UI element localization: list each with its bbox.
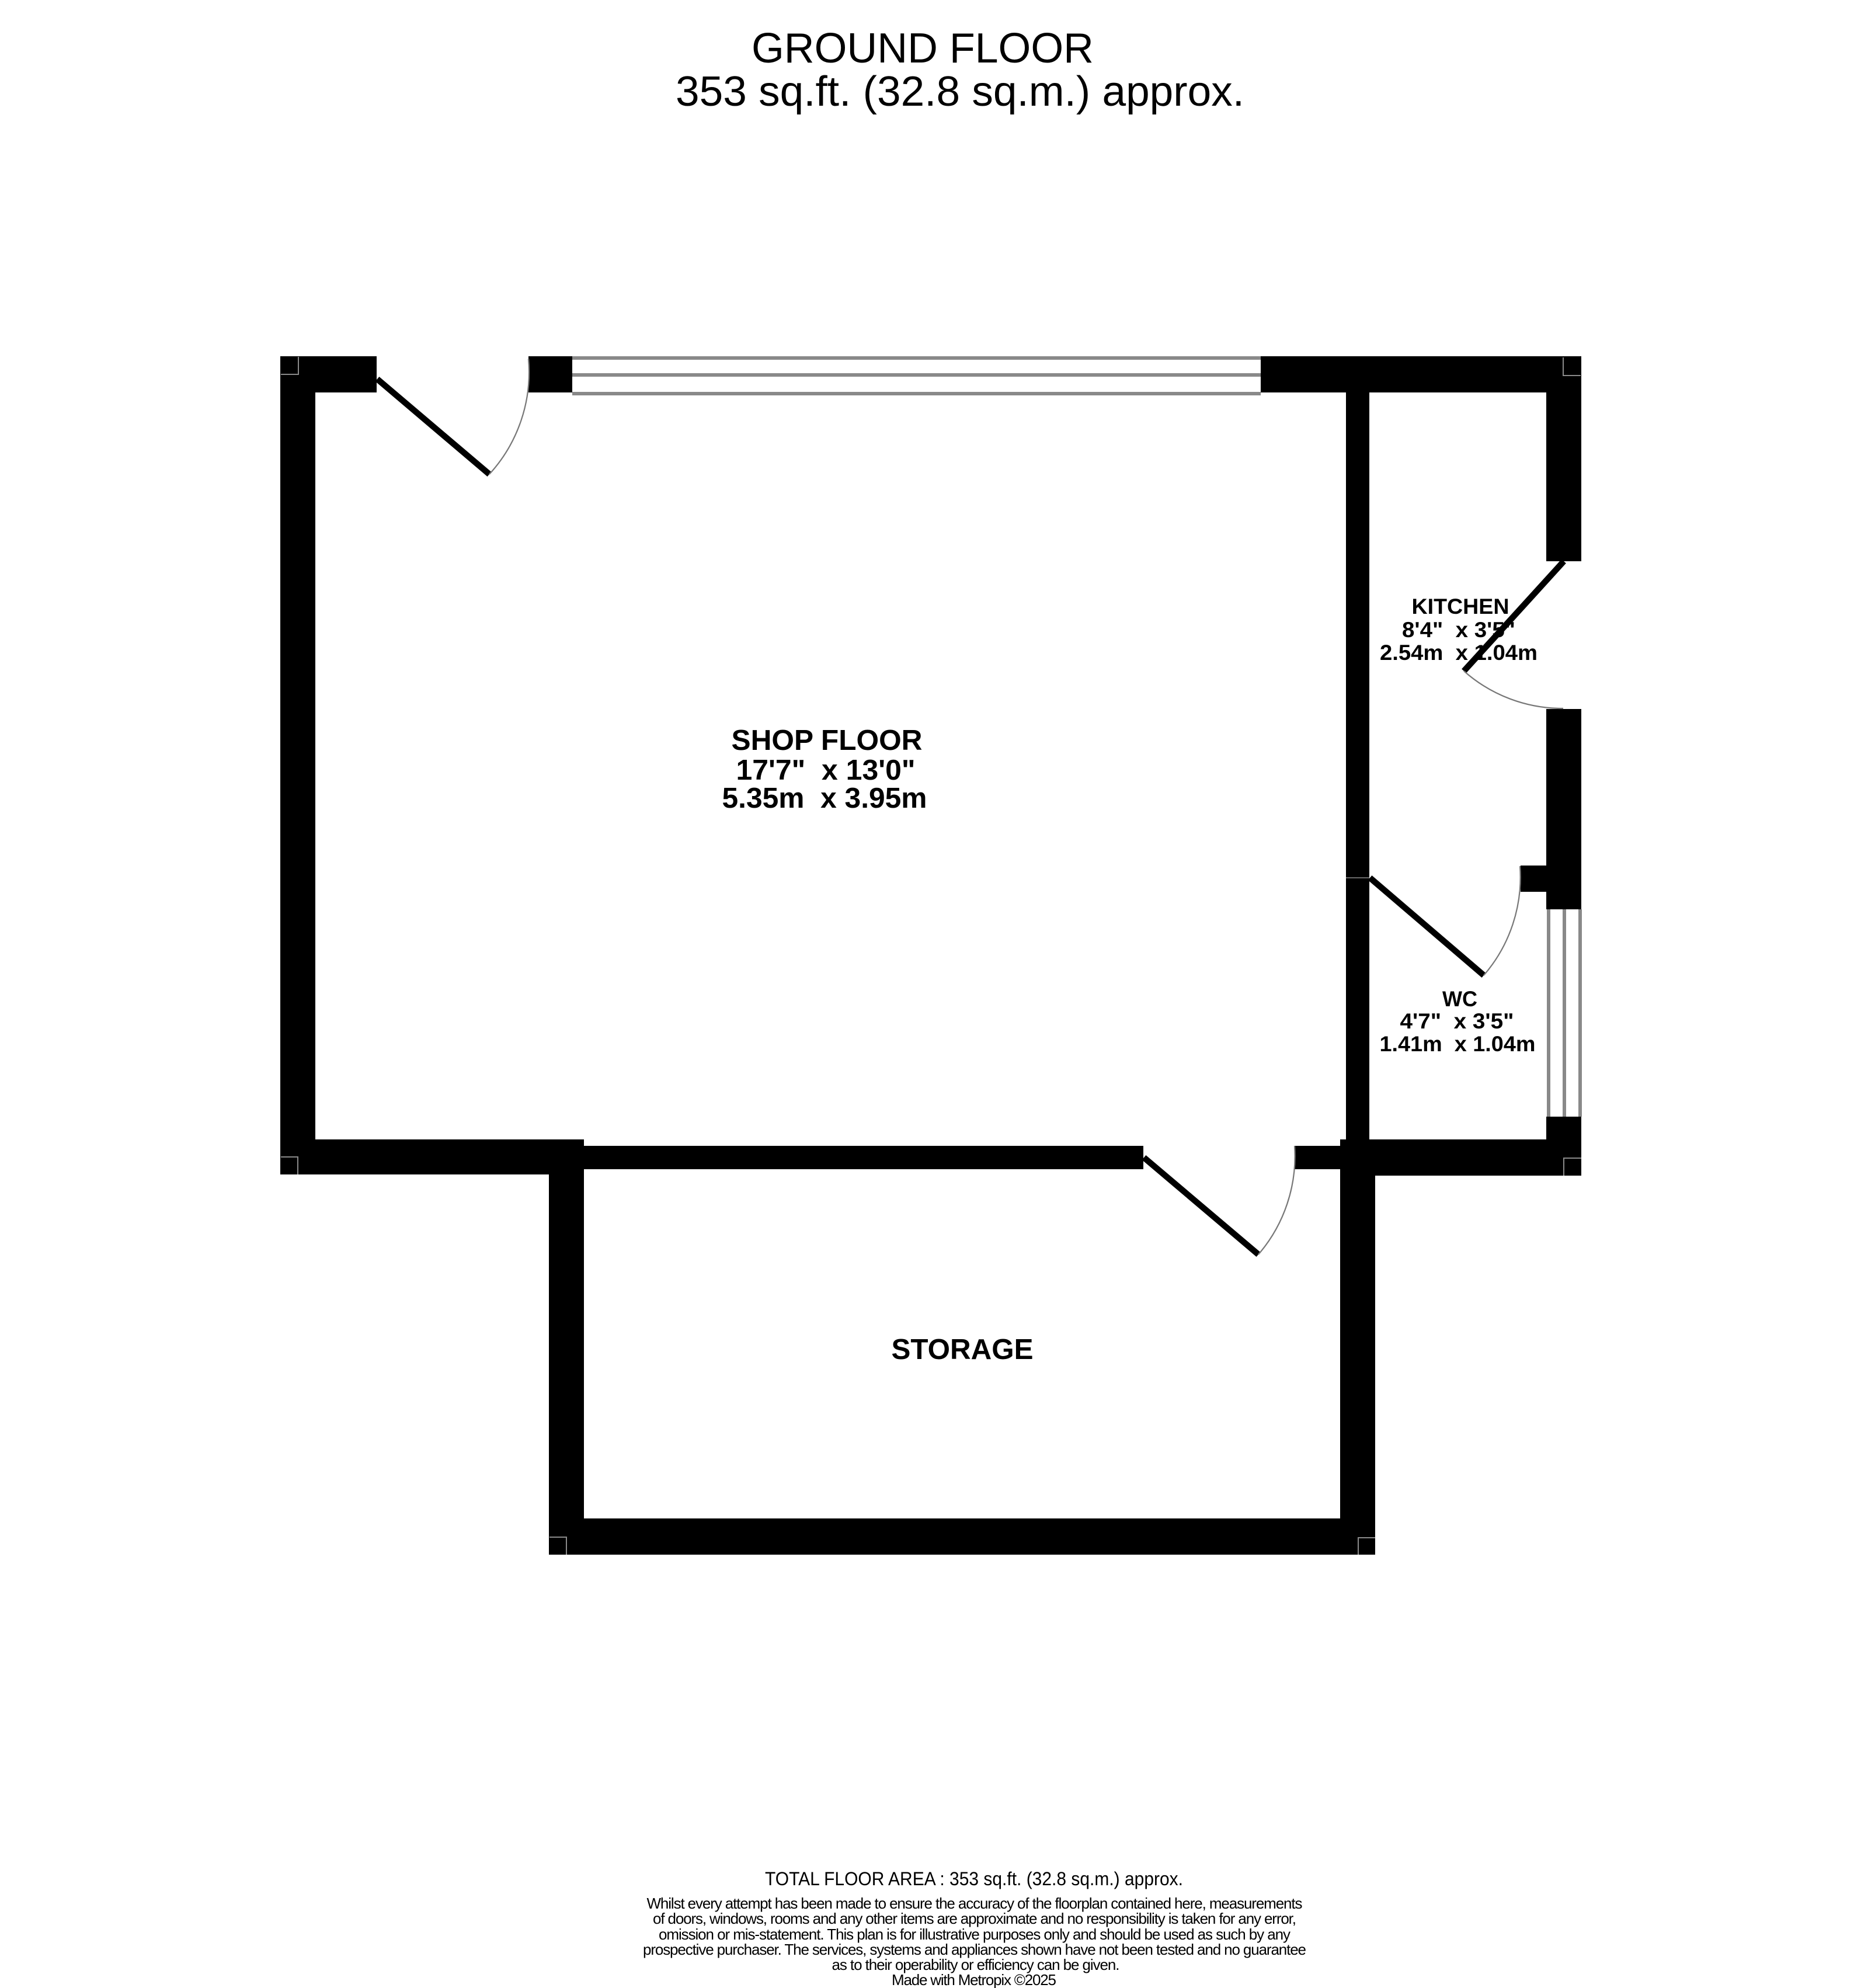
svg-text:KITCHEN: KITCHEN — [1412, 595, 1509, 618]
svg-text:SHOP FLOOR: SHOP FLOOR — [732, 725, 923, 756]
svg-text:2.54m x 1.04m: 2.54m x 1.04m — [1380, 641, 1538, 665]
svg-text:STORAGE: STORAGE — [892, 1334, 1034, 1365]
svg-text:8'4" x 3'5": 8'4" x 3'5" — [1402, 618, 1515, 642]
svg-text:GROUND FLOOR: GROUND FLOOR — [752, 25, 1094, 72]
svg-text:17'7" x 13'0": 17'7" x 13'0" — [736, 755, 916, 786]
svg-text:TOTAL FLOOR AREA : 353 sq.ft.: TOTAL FLOOR AREA : 353 sq.ft. (32.8 sq.m… — [765, 1868, 1183, 1889]
svg-text:5.35m x 3.95m: 5.35m x 3.95m — [722, 783, 927, 814]
svg-text:of doors, windows, rooms and a: of doors, windows, rooms and any other i… — [653, 1910, 1296, 1927]
svg-text:Made with Metropix ©2025: Made with Metropix ©2025 — [892, 1971, 1056, 1988]
svg-text:1.41m x 1.04m: 1.41m x 1.04m — [1380, 1032, 1536, 1056]
svg-text:WC: WC — [1442, 987, 1477, 1011]
svg-text:353 sq.ft. (32.8 sq.m.) approx: 353 sq.ft. (32.8 sq.m.) approx. — [676, 68, 1244, 115]
svg-text:4'7" x 3'5": 4'7" x 3'5" — [1400, 1009, 1514, 1033]
